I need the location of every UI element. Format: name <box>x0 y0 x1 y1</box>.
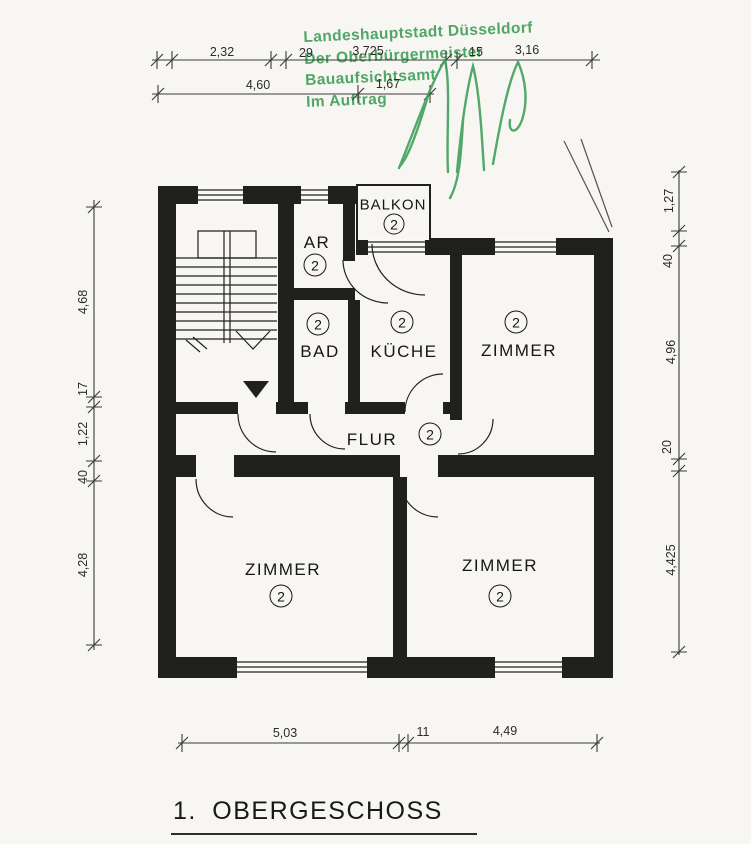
floor-plan-page: Landeshauptstadt Düsseldorf Der Oberbürg… <box>0 0 751 844</box>
signature-icon <box>0 0 751 844</box>
